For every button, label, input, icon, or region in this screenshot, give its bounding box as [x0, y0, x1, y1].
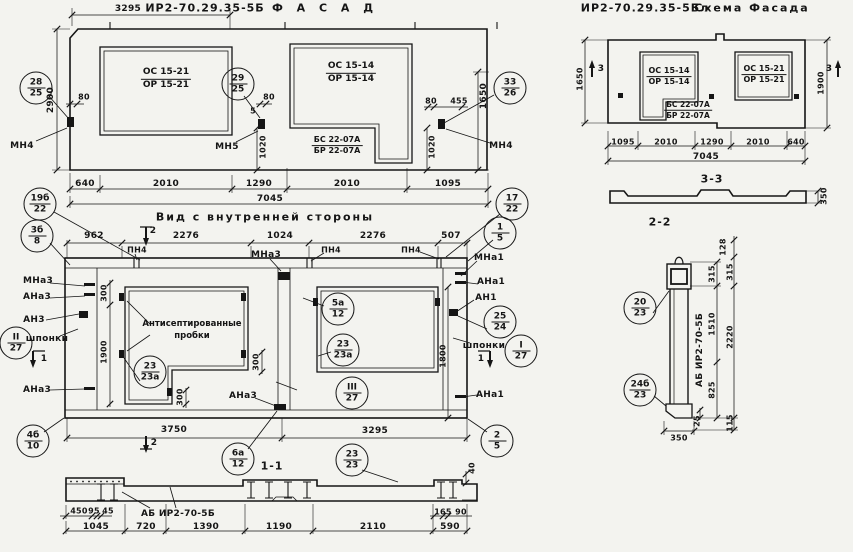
interior-label-ana1b: АНа1	[476, 390, 504, 400]
callout-4b-10: 4б10	[17, 425, 50, 458]
facade-dim-bottom-3: 2010	[334, 179, 360, 189]
scheme-dim-bottom-2: 1290	[700, 138, 723, 147]
callout-5a-12: 5а12	[322, 293, 355, 326]
callout-23-23: 2323	[336, 444, 369, 477]
callout-I-27: I27	[505, 335, 538, 368]
interior-label-ana3-left: АНа3	[23, 292, 51, 302]
s22-dim-2220: 2220	[726, 325, 735, 348]
facade-anchor-mn5: МН5	[215, 142, 239, 152]
blueprint-sheet: ИР2-70.29.35-5Б Ф А С А Д 3295 2900 1650…	[0, 0, 853, 552]
interior-label-pn4-b: ПН4	[321, 246, 341, 255]
scheme-dim-total: 7045	[693, 152, 719, 162]
lifting-loop-icon	[675, 257, 683, 264]
interior-dim-300c: 300	[176, 388, 185, 406]
scheme-dim-bottom-3: 2010	[746, 138, 769, 147]
section2-label-top: 2	[150, 226, 157, 236]
facade-dim-455: 455	[450, 97, 468, 106]
interior-dim-300b: 300	[252, 353, 261, 371]
scheme-dim-bottom-0: 1095	[611, 138, 634, 147]
s22-dim-115: 115	[726, 414, 735, 432]
section11-title: 1-1	[261, 460, 284, 473]
interior-dim-top-2: 1024	[267, 231, 293, 241]
facade-dim-5: 5	[250, 107, 256, 116]
interior-dim-top-0: 962	[84, 231, 104, 241]
callout-6a-12: 6а12	[222, 443, 255, 476]
callout-23-23a-left: 2323а	[134, 356, 167, 389]
s11-dim-450: 450	[70, 507, 88, 516]
facade-dim-1020-right: 1020	[428, 135, 437, 158]
facade-dim-bottom-4: 1095	[435, 179, 461, 189]
facade-window-right-label: ОС 15-14ОР 15-14	[326, 61, 376, 85]
s22-dim-128: 128	[719, 238, 728, 256]
callout-25-24: 2524	[484, 306, 517, 339]
facade-door-label: БС 22-07АБР 22-07А	[312, 135, 363, 157]
s22-dim-25: 25	[693, 415, 702, 427]
interior-label-mna3-left: МНа3	[23, 276, 53, 286]
facade-dim-total: 7045	[257, 194, 283, 204]
interior-dim-top-3: 2276	[360, 231, 386, 241]
s11-dim-95: 95	[88, 507, 100, 516]
interior-plugs-note: Антисептированныепробки	[142, 319, 241, 343]
callout-23-23a-right: 2323а	[327, 334, 360, 367]
scheme-window-right-label: ОС 15-21ОР 15-21	[741, 64, 786, 86]
s22-dim-315b: 315	[726, 263, 735, 281]
scheme-dim-left: 1650	[576, 67, 585, 90]
facade-anchor-mn4-right: МН4	[489, 141, 513, 151]
interior-label-ana3-left2: АНа3	[23, 385, 51, 395]
callout-33-26: 3326	[494, 72, 527, 105]
s22-dim-315a: 315	[708, 265, 717, 283]
callout-19b-22: 19б22	[24, 188, 57, 221]
interior-label-shponki-right: шпонки	[463, 341, 505, 351]
s11-dim-165: 165	[434, 508, 452, 517]
interior-dim-top-1: 2276	[173, 231, 199, 241]
facade-dim-top: 3295	[115, 4, 141, 14]
interior-label-mna3-center: МНа3	[251, 250, 281, 260]
section33-title: 3-3	[701, 173, 724, 186]
facade-dim-80-left: 80	[78, 93, 90, 102]
callout-28-25: 2825	[20, 72, 53, 105]
s33-dim-350: 350	[820, 187, 829, 205]
section1-label-right: 1	[478, 354, 485, 364]
interior-dim-1800: 1800	[439, 344, 448, 367]
interior-dim-3750: 3750	[161, 425, 187, 435]
facade-title-name: Ф А С А Д	[272, 2, 378, 15]
callout-29-25: 2925	[222, 68, 255, 101]
facade-dim-right: 1650	[479, 83, 489, 109]
facade-dim-bottom-0: 640	[75, 179, 95, 189]
s11-dim-590: 590	[440, 522, 460, 532]
interior-dim-1900: 1900	[100, 340, 109, 363]
scheme-dim-bottom-4: 640	[787, 138, 805, 147]
s22-dim-825: 825	[708, 381, 717, 399]
section22-title: 2-2	[649, 216, 672, 229]
scheme-dim-bottom-1: 2010	[654, 138, 677, 147]
interior-label-pn4-c: ПН4	[401, 246, 421, 255]
interior-label-an3-left: АН3	[23, 315, 45, 325]
scheme-window-left-label: ОС 15-14ОР 15-14	[646, 66, 691, 88]
callout-1-5: 15	[484, 217, 517, 250]
joint-ticks	[110, 22, 497, 268]
facade-title-code: ИР2-70.29.35-5Б	[145, 2, 264, 15]
callout-20-23: 2023	[624, 292, 657, 325]
scheme-door-label: БС 22-07АБР 22-07А	[664, 100, 712, 121]
interior-label-an1: АН1	[475, 293, 497, 303]
callout-II-27: II27	[0, 327, 33, 360]
s11-dim-720: 720	[136, 522, 156, 532]
interior-dim-3295: 3295	[362, 426, 388, 436]
facade-anchor-mn4-left: МН4	[10, 141, 34, 151]
section1-label-left: 1	[41, 354, 48, 364]
scheme-title-code: ИР2-70.29.35-5Бл	[581, 2, 709, 15]
s11-dim-1190: 1190	[266, 522, 292, 532]
s22-dim-350: 350	[670, 434, 688, 443]
callout-III-27: III27	[336, 377, 369, 410]
section3-label-left: 3	[598, 64, 605, 74]
section-arrows	[30, 60, 841, 453]
callout-2-5: 25	[481, 425, 514, 458]
facade-dim-1020-left: 1020	[259, 135, 268, 158]
s11-dim-1045: 1045	[83, 522, 109, 532]
interior-label-mna1: МНа1	[474, 253, 504, 263]
interior-label-ana3-center: АНа3	[229, 391, 257, 401]
s11-dim-40: 40	[468, 462, 477, 474]
interior-title: Вид с внутренней стороны	[156, 211, 374, 224]
interior-dim-300a: 300	[100, 284, 109, 302]
facade-dim-80-mid: 80	[263, 93, 275, 102]
section22-profile	[666, 257, 692, 418]
interior-label-pn4-a: ПН4	[127, 246, 147, 255]
s22-dim-1510: 1510	[708, 312, 717, 335]
section3-label-right: 3	[826, 64, 833, 74]
facade-dim-bottom-2: 1290	[246, 179, 272, 189]
facade-dim-80-right: 80	[425, 97, 437, 106]
section2-label-bottom: 2	[151, 438, 158, 448]
callout-24b-23: 24б23	[624, 374, 657, 407]
scheme-title-name: Схема Фасада	[694, 2, 809, 15]
section11-beam-label: АБ ИР2-70-5Б	[141, 509, 215, 519]
interior-dim-top-4: 507	[441, 231, 461, 241]
s11-dim-90: 90	[455, 508, 467, 517]
s11-dim-1390: 1390	[193, 522, 219, 532]
s11-dim-45: 45	[102, 507, 114, 516]
s11-dim-2110: 2110	[360, 522, 386, 532]
facade-window-left-label: ОС 15-21ОР 15-21	[141, 67, 191, 91]
callout-3b-8: 3б8	[21, 220, 54, 253]
scheme-dim-right: 1900	[817, 71, 826, 94]
section33-profile	[610, 190, 806, 203]
s22-beam-label: АБ ИР2-70-5Б	[695, 313, 705, 387]
facade-dim-bottom-1: 2010	[153, 179, 179, 189]
interior-label-ana1: АНа1	[477, 277, 505, 287]
